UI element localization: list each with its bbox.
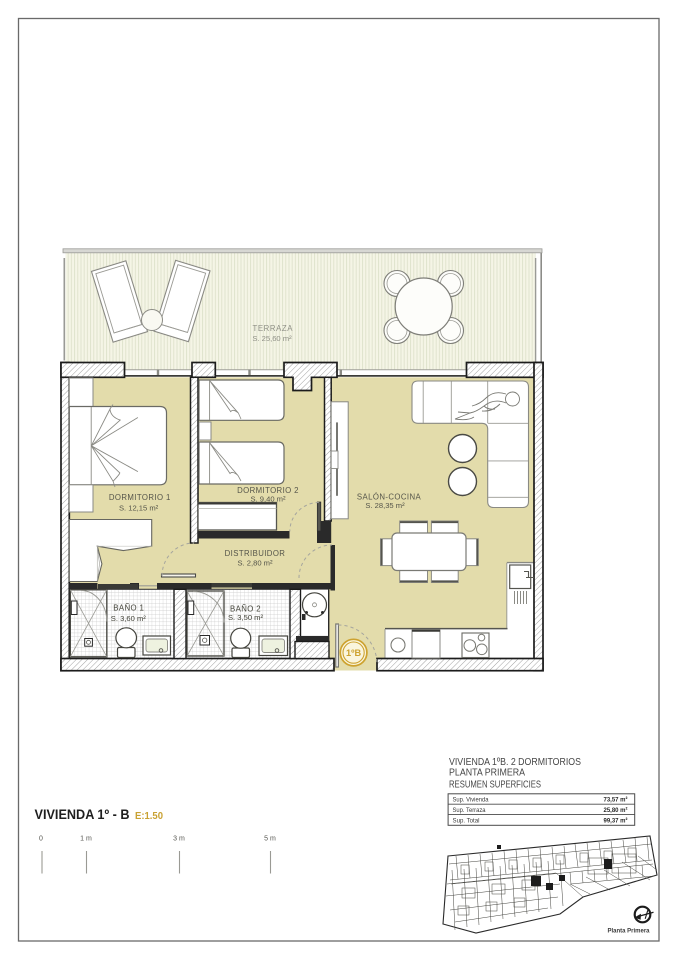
svg-text:S. 3,50 m²: S. 3,50 m² (228, 613, 263, 622)
svg-text:Planta Primera: Planta Primera (608, 928, 651, 935)
svg-text:S. 28,35 m²: S. 28,35 m² (365, 501, 405, 510)
svg-text:5 m: 5 m (264, 836, 276, 843)
svg-text:E:1.50: E:1.50 (135, 810, 163, 822)
svg-text:99,37 m²: 99,37 m² (604, 817, 629, 824)
svg-text:DORMITORIO 1: DORMITORIO 1 (109, 493, 171, 502)
svg-text:1 m: 1 m (80, 836, 92, 843)
svg-text:3 m: 3 m (173, 836, 185, 843)
svg-text:Sup. Terraza: Sup. Terraza (453, 807, 486, 814)
svg-text:BAÑO 1: BAÑO 1 (113, 604, 144, 613)
svg-text:VIVIENDA 1º - B: VIVIENDA 1º - B (35, 806, 130, 822)
svg-text:S. 3,60 m²: S. 3,60 m² (111, 614, 146, 623)
svg-text:TERRAZA: TERRAZA (253, 324, 294, 333)
svg-text:73,57 m²: 73,57 m² (604, 797, 629, 804)
svg-text:Sup. Vivienda: Sup. Vivienda (453, 797, 489, 804)
svg-text:S. 2,80 m²: S. 2,80 m² (237, 559, 272, 568)
svg-text:RESUMEN SUPERFICIES: RESUMEN SUPERFICIES (449, 780, 541, 791)
svg-text:VIVIENDA 1ºB. 2 DORMITORIOS: VIVIENDA 1ºB. 2 DORMITORIOS (449, 757, 581, 768)
svg-text:1ºB: 1ºB (346, 648, 361, 658)
svg-text:Sup. Total: Sup. Total (453, 817, 480, 824)
svg-text:S. 9,40 m²: S. 9,40 m² (250, 495, 285, 504)
svg-text:S. 25,60 m²: S. 25,60 m² (252, 334, 292, 343)
svg-text:S. 12,15 m²: S. 12,15 m² (119, 503, 159, 512)
svg-text:25,80 m²: 25,80 m² (604, 807, 629, 814)
svg-text:PLANTA PRIMERA: PLANTA PRIMERA (449, 768, 525, 779)
svg-text:DISTRIBUIDOR: DISTRIBUIDOR (225, 549, 286, 558)
svg-text:0: 0 (39, 836, 43, 843)
